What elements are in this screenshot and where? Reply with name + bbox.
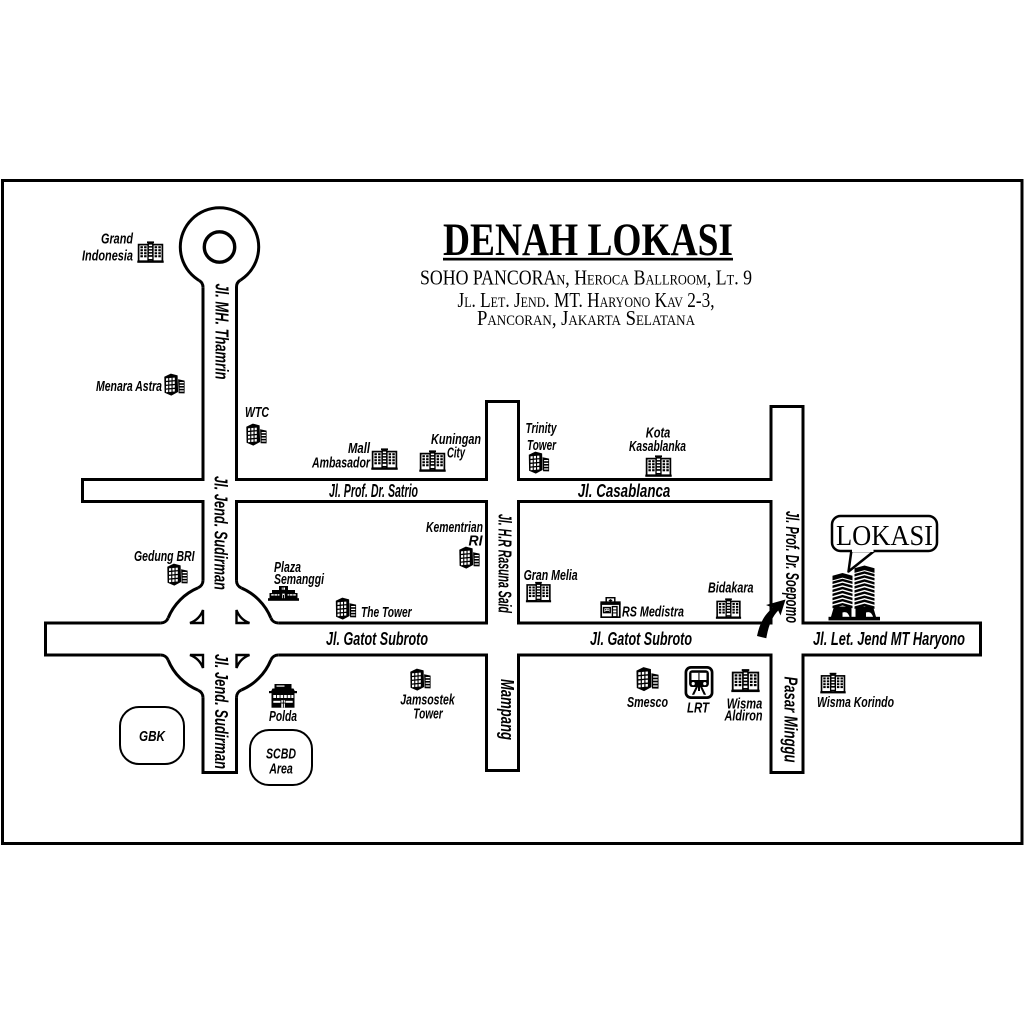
svg-text:Pasar Minggu: Pasar Minggu <box>781 677 801 763</box>
svg-text:Tower: Tower <box>413 706 443 722</box>
svg-text:RI: RI <box>469 534 484 550</box>
svg-text:Kasablanka: Kasablanka <box>629 439 686 455</box>
svg-text:The Tower: The Tower <box>361 605 413 621</box>
svg-text:Semanggi: Semanggi <box>274 572 325 588</box>
svg-text:Jl. Gatot Subroto: Jl. Gatot Subroto <box>326 629 428 649</box>
svg-text:Mall: Mall <box>348 441 371 457</box>
svg-text:Jl. Let. Jend MT Haryono: Jl. Let. Jend MT Haryono <box>813 629 965 649</box>
svg-text:Aldiron: Aldiron <box>724 709 763 725</box>
svg-text:Jl. Casablanca: Jl. Casablanca <box>578 481 671 501</box>
svg-text:Smesco: Smesco <box>627 695 668 711</box>
svg-text:Tower: Tower <box>527 438 557 454</box>
svg-text:Wisma Korindo: Wisma Korindo <box>817 695 894 711</box>
svg-text:Indonesia: Indonesia <box>82 248 133 264</box>
svg-text:GBK: GBK <box>139 729 166 745</box>
svg-text:RS Medistra: RS Medistra <box>622 605 684 621</box>
svg-text:SCBD: SCBD <box>266 746 296 762</box>
svg-text:Jl. MH. Thamrin: Jl. MH. Thamrin <box>212 284 232 380</box>
svg-text:Area: Area <box>268 761 292 777</box>
svg-text:LRT: LRT <box>687 700 710 716</box>
svg-text:LOKASI: LOKASI <box>836 521 933 552</box>
svg-text:Jl. Jend. Sudirman: Jl. Jend. Sudirman <box>211 654 231 769</box>
svg-text:City: City <box>447 446 466 462</box>
svg-text:Grand: Grand <box>101 232 134 248</box>
svg-text:Jl. Prof. Dr. Soepomo: Jl. Prof. Dr. Soepomo <box>782 511 802 623</box>
svg-text:Jl. H.R Rasuna Said: Jl. H.R Rasuna Said <box>495 514 515 614</box>
svg-text:Jl. Jend. Sudirman: Jl. Jend. Sudirman <box>211 476 231 590</box>
svg-text:SOHO PANCORAn, Heroca Ballroom: SOHO PANCORAn, Heroca Ballroom, Lt. 9 <box>420 266 752 290</box>
svg-text:WTC: WTC <box>245 405 269 421</box>
svg-text:Trinity: Trinity <box>526 421 558 437</box>
svg-text:Gedung BRI: Gedung BRI <box>134 549 195 565</box>
svg-text:Bidakara: Bidakara <box>708 581 754 597</box>
svg-text:Pancoran, Jakarta Selatana: Pancoran, Jakarta Selatana <box>477 306 695 330</box>
svg-text:Jl. Gatot Subroto: Jl. Gatot Subroto <box>590 629 692 649</box>
svg-text:Mampang: Mampang <box>497 679 517 740</box>
svg-text:Polda: Polda <box>269 709 297 725</box>
svg-text:Ambasador: Ambasador <box>311 456 371 472</box>
svg-text:Jl. Prof. Dr. Satrio: Jl. Prof. Dr. Satrio <box>329 481 418 501</box>
svg-text:Menara Astra: Menara Astra <box>96 379 162 395</box>
svg-text:Gran Melia: Gran Melia <box>524 568 578 584</box>
